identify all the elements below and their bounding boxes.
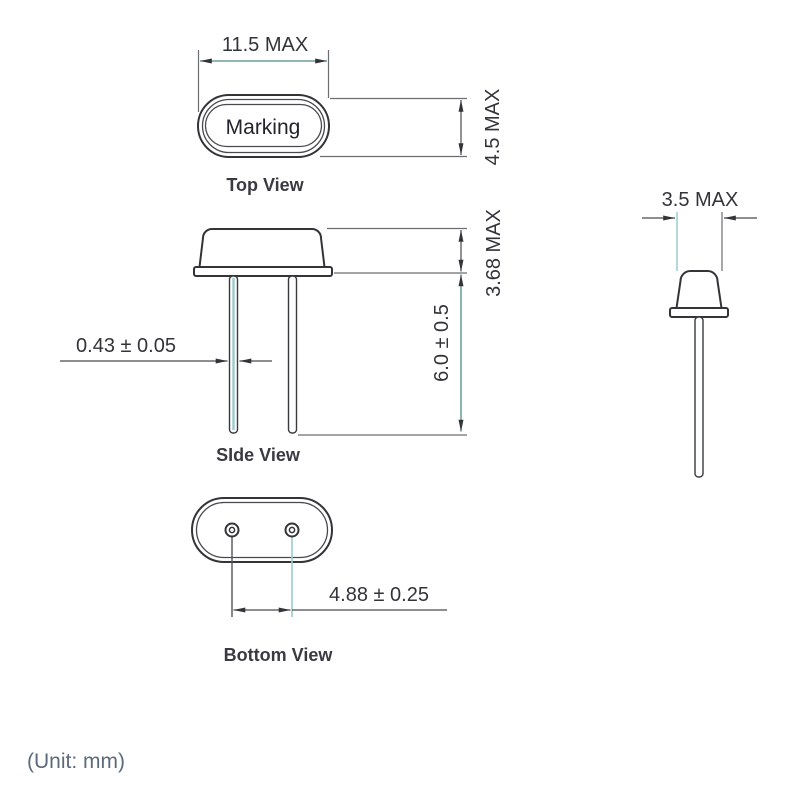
dimension-drawing: 11.5 MAX Marking Top View 4.5 MAX SIde V… [0,0,800,800]
end-view: 3.5 MAX [642,189,757,477]
bottom-view: 4.88 ± 0.25 Bottom View [192,498,447,665]
dim-body-height-text: 4.5 MAX [482,89,504,166]
dim-lead-diameter-text: 0.43 ± 0.05 [76,335,176,357]
bottom-view-label: Bottom View [224,645,334,665]
side-view-can [200,229,325,267]
side-view-flange [194,267,332,276]
side-view: SIde View 0.43 ± 0.05 3.68 MAX 6.0 ± 0.5 [60,209,505,465]
side-view-label: SIde View [216,445,301,465]
dim-body-width-text: 11.5 MAX [222,34,308,56]
bottom-view-outer-outline [192,498,332,562]
pin-left-hole [229,527,234,532]
dim-can-height-text: 3.68 MAX [483,209,505,297]
end-view-flange [670,308,728,317]
lead-right [289,276,297,433]
marking-text: Marking [226,116,301,139]
pin-right-hole [289,527,294,532]
top-view-label: Top View [226,175,304,195]
drawing-svg: 11.5 MAX Marking Top View 4.5 MAX SIde V… [0,0,800,800]
dim-pin-spacing-text: 4.88 ± 0.25 [329,584,429,606]
dim-end-width-text: 3.5 MAX [662,189,739,211]
dim-lead-length-text: 6.0 ± 0.5 [431,304,453,382]
end-view-lead [695,317,703,477]
top-view: 11.5 MAX Marking Top View 4.5 MAX [198,34,504,195]
unit-note: (Unit: mm) [27,750,125,773]
end-view-can [677,271,722,308]
bottom-view-inner-outline [197,503,328,558]
